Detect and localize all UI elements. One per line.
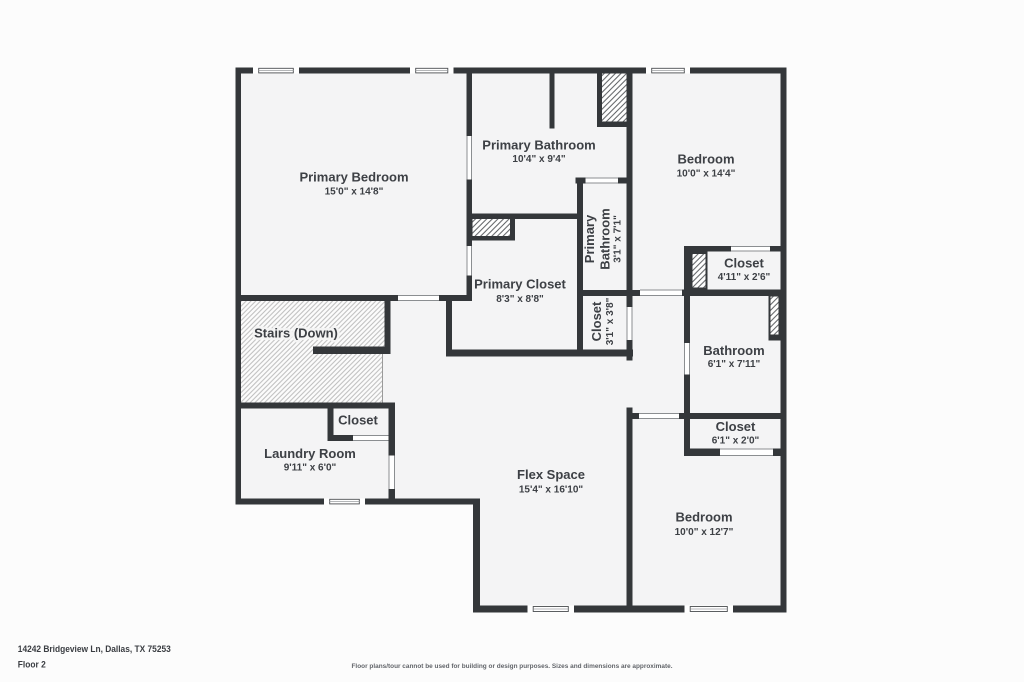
- svg-text:Closet: Closet: [589, 301, 604, 341]
- svg-text:Bedroom: Bedroom: [675, 510, 732, 525]
- svg-text:Primary Bedroom: Primary Bedroom: [299, 170, 408, 185]
- svg-text:Closet: Closet: [724, 256, 764, 271]
- svg-text:Stairs (Down): Stairs (Down): [254, 325, 338, 340]
- svg-text:6'1" x 2'0": 6'1" x 2'0": [712, 435, 760, 446]
- svg-text:Closet: Closet: [716, 419, 756, 434]
- svg-text:Bedroom: Bedroom: [677, 152, 734, 167]
- svg-text:10'4" x 9'4": 10'4" x 9'4": [512, 154, 565, 165]
- svg-text:Primary Closet: Primary Closet: [474, 276, 566, 291]
- svg-text:3'1" x 7'1": 3'1" x 7'1": [613, 215, 624, 263]
- svg-text:Primary: Primary: [582, 214, 597, 263]
- svg-text:Floor 2: Floor 2: [18, 660, 46, 670]
- svg-text:Closet: Closet: [338, 413, 378, 428]
- svg-text:10'0" x 14'4": 10'0" x 14'4": [677, 169, 736, 180]
- svg-text:Bathroom: Bathroom: [597, 208, 612, 269]
- svg-text:9'11" x 6'0": 9'11" x 6'0": [284, 463, 337, 474]
- svg-text:Bathroom: Bathroom: [703, 343, 764, 358]
- svg-text:8'3" x 8'8": 8'3" x 8'8": [496, 294, 544, 305]
- svg-text:15'4" x 16'10": 15'4" x 16'10": [519, 485, 584, 496]
- svg-text:3'1" x 3'8": 3'1" x 3'8": [605, 297, 616, 345]
- svg-text:Laundry Room: Laundry Room: [264, 446, 356, 461]
- svg-text:15'0" x 14'8": 15'0" x 14'8": [325, 187, 384, 198]
- svg-text:Floor plans/tour cannot be use: Floor plans/tour cannot be used for buil…: [352, 663, 673, 670]
- svg-text:Flex Space: Flex Space: [517, 467, 585, 482]
- svg-text:14242 Bridgeview Ln, Dallas, T: 14242 Bridgeview Ln, Dallas, TX 75253: [18, 644, 171, 654]
- svg-text:Primary Bathroom: Primary Bathroom: [482, 138, 595, 153]
- svg-text:6'1" x 7'11": 6'1" x 7'11": [708, 359, 761, 370]
- svg-text:4'11" x 2'6": 4'11" x 2'6": [718, 272, 771, 283]
- svg-text:10'0" x 12'7": 10'0" x 12'7": [675, 527, 734, 538]
